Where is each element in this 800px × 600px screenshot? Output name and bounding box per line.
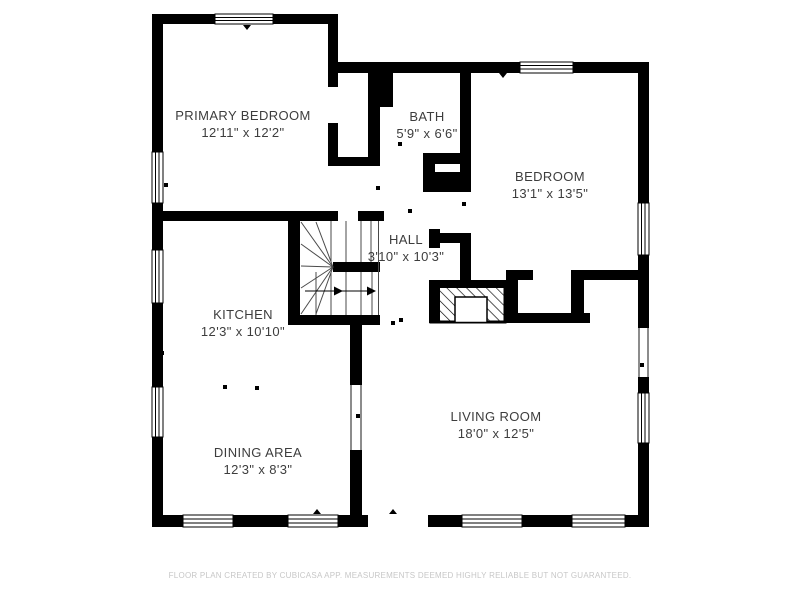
floor-plan-drawing [0,0,800,600]
room-name: BEDROOM [512,168,589,185]
window [288,515,338,527]
window [152,152,163,203]
room-dimensions: 18'0" x 12'5" [450,425,541,442]
room-dimensions: 12'3" x 8'3" [214,461,302,478]
footer-disclaimer: FLOOR PLAN CREATED BY CUBICASA APP. MEAS… [0,571,800,580]
room-label-bath: BATH 5'9" x 6'6" [396,108,457,142]
room-dimensions: 12'3" x 10'10" [201,323,285,340]
window [638,393,649,443]
fireplace-flue [455,297,487,323]
window [462,515,522,527]
room-dimensions: 5'9" x 6'6" [396,125,457,142]
room-label-hall: HALL 3'10" x 10'3" [368,231,445,265]
room-label-living-room: LIVING ROOM 18'0" x 12'5" [450,408,541,442]
window [215,14,273,24]
floor-plan-page: PRIMARY BEDROOM 12'11" x 12'2" BATH 5'9"… [0,0,800,600]
room-label-kitchen: KITCHEN 12'3" x 10'10" [201,306,285,340]
fireplace [431,282,505,323]
door-ticks [160,25,644,514]
room-name: LIVING ROOM [450,408,541,425]
window [638,203,649,255]
window [152,250,163,303]
room-label-dining-area: DINING AREA 12'3" x 8'3" [214,444,302,478]
window [520,62,573,73]
room-dimensions: 13'1" x 13'5" [512,185,589,202]
room-name: PRIMARY BEDROOM [175,107,311,124]
room-name: BATH [396,108,457,125]
room-dimensions: 3'10" x 10'3" [368,248,445,265]
room-label-primary-bedroom: PRIMARY BEDROOM 12'11" x 12'2" [175,107,311,141]
window [572,515,625,527]
window [152,387,163,437]
room-name: HALL [368,231,445,248]
room-name: KITCHEN [201,306,285,323]
room-dimensions: 12'11" x 12'2" [175,124,311,141]
room-name: DINING AREA [214,444,302,461]
window [183,515,233,527]
room-label-bedroom: BEDROOM 13'1" x 13'5" [512,168,589,202]
